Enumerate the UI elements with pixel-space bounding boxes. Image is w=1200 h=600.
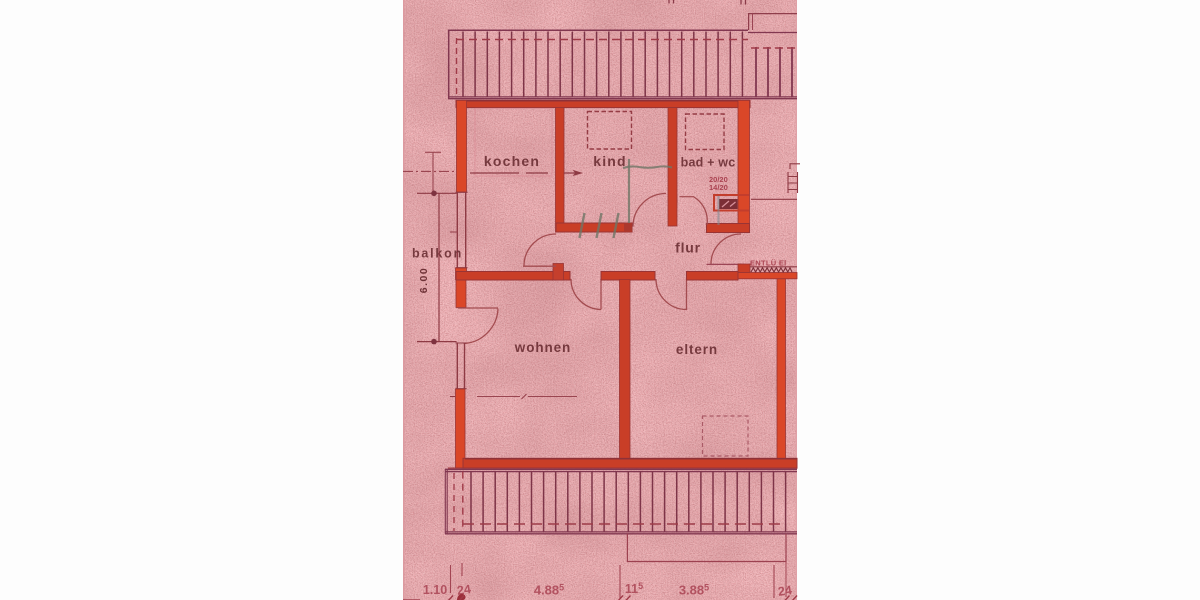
svg-text:ENTLÜ El: ENTLÜ El [750,259,787,268]
svg-text:bad + wc: bad + wc [681,156,736,170]
svg-text:14/20: 14/20 [709,183,728,192]
svg-text:1.10: 1.10 [423,583,447,597]
svg-text:kind: kind [593,153,627,169]
svg-text:flur: flur [675,240,701,256]
svg-text:24: 24 [777,583,793,599]
svg-text:kochen: kochen [484,153,540,169]
svg-text:6.00: 6.00 [418,267,430,293]
svg-text:eltern: eltern [676,342,718,357]
svg-text:wohnen: wohnen [514,340,571,355]
svg-text:balkon: balkon [412,247,463,261]
